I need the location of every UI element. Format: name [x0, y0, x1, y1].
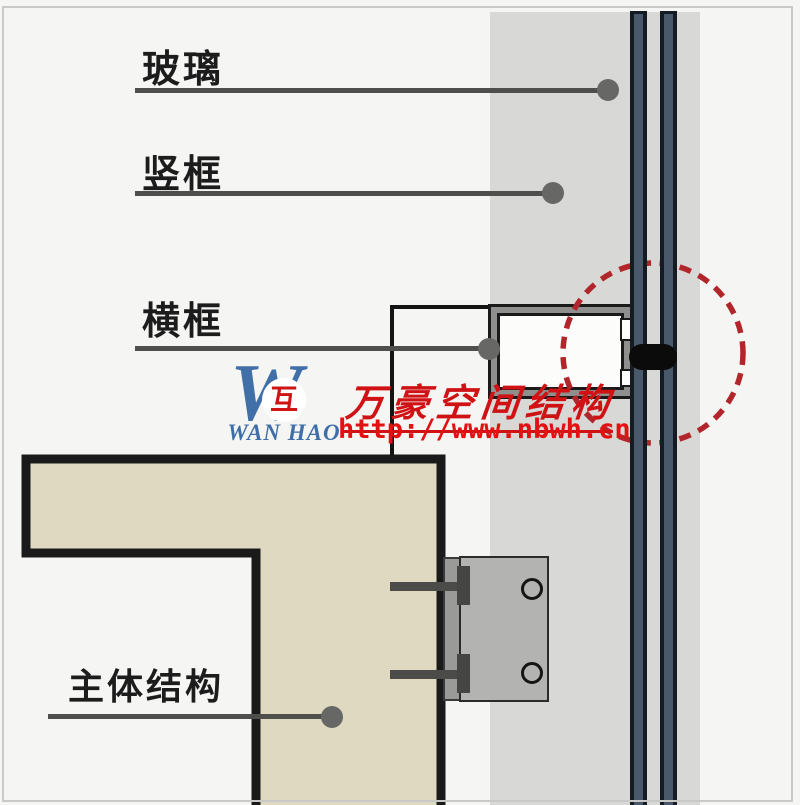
- glass-pane-inner: [660, 11, 677, 805]
- leader-dot-transom: [478, 338, 500, 360]
- curtain-wall-detail-diagram: 玻璃 竖框 横框 主体结构 W 互 WAN HAO 万豪空间结构 http://…: [0, 0, 800, 805]
- leader-line-transom: [135, 346, 480, 351]
- leader-dot-glass: [597, 79, 619, 101]
- anchor-bolt-top: [390, 582, 466, 591]
- callout-label-glass: 玻璃: [142, 38, 224, 93]
- wanhao-logo-circle-icon: 互: [262, 378, 306, 422]
- watermark: W 互 WAN HAO 万豪空间结构 http://www.nbwh.cn: [222, 358, 652, 453]
- anchor-bolt-head-top: [457, 566, 470, 605]
- leader-line-structure: [48, 714, 325, 719]
- leader-dot-structure: [321, 706, 343, 728]
- bolt-hole-bottom: [521, 662, 543, 684]
- anchor-bolt-head-bottom: [457, 654, 470, 693]
- bracket-plate: [459, 556, 549, 702]
- leader-dot-mullion: [542, 182, 564, 204]
- watermark-url: http://www.nbwh.cn: [338, 414, 631, 445]
- anchor-bolt-bottom: [390, 670, 466, 679]
- wanhao-logo-symbol-icon: 互: [270, 386, 298, 414]
- bolt-hole-top: [521, 578, 543, 600]
- callout-label-transom: 横框: [142, 290, 224, 345]
- watermark-logo-name: WAN HAO: [224, 420, 344, 446]
- callout-label-mullion: 竖框: [142, 143, 224, 198]
- callout-label-structure: 主体结构: [68, 658, 224, 710]
